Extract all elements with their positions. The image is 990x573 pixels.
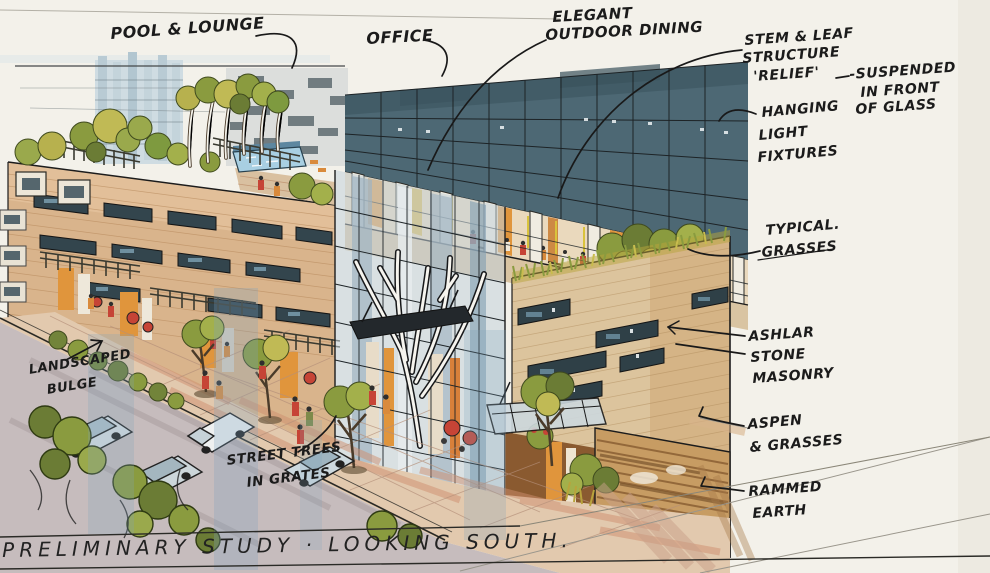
annotation-rammed-earth-line2: EARTH (752, 503, 807, 521)
annotation-ashlar-line2: STONE (750, 347, 806, 365)
annotation-hanging-lights-line2: LIGHT (758, 125, 808, 143)
sketch-page: POOL & LOUNGE OFFICE ELEGANT OUTDOOR DIN… (0, 0, 990, 573)
scan-edge (958, 0, 990, 573)
rendering-scene (0, 0, 990, 573)
annotation-office: OFFICE (366, 27, 434, 46)
